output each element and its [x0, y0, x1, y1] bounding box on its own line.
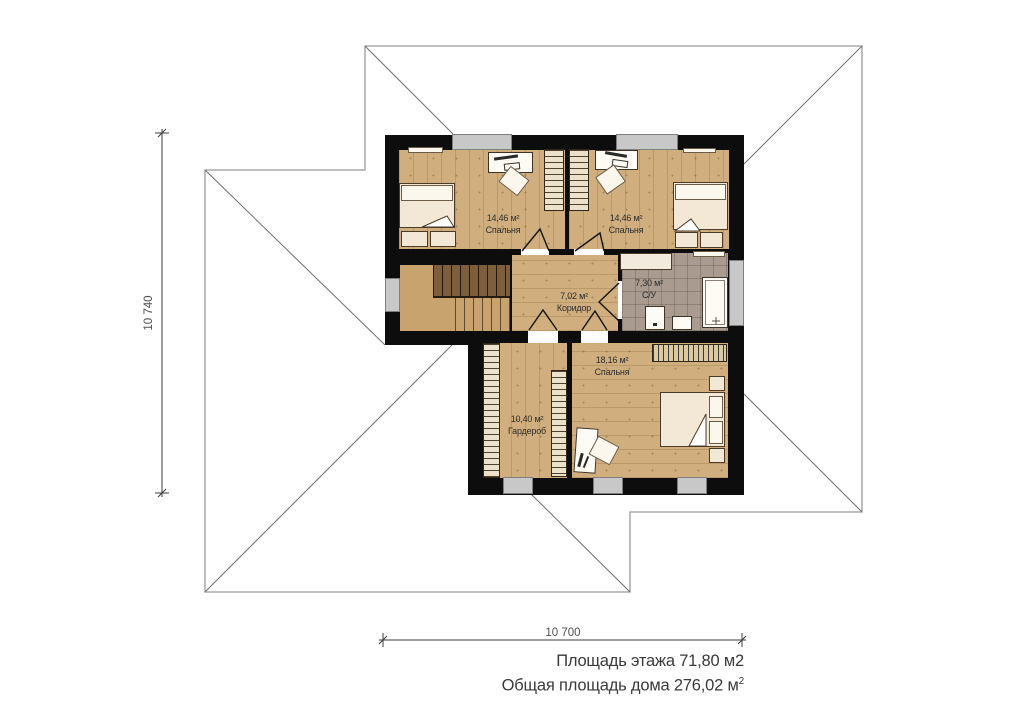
- window-left-staircase: [385, 278, 400, 312]
- stair-flight-upper: [433, 265, 510, 297]
- bathroom-counter: [620, 253, 672, 270]
- dresser-2-bedroom-top-left: [430, 231, 456, 247]
- nightstand-1-bedroom-bottom: [709, 376, 725, 391]
- label-wardrobe-area: 10,40 м²: [511, 414, 544, 424]
- label-bedroom-bottom-area: 18,16 м²: [596, 355, 629, 365]
- wardrobe-shelving-left: [483, 343, 500, 478]
- label-bedroom-top-left: 14,46 м² Спальня: [467, 213, 539, 236]
- label-bedroom-bottom-name: Спальня: [595, 367, 630, 377]
- pillow-1-bedroom-bottom: [709, 396, 723, 418]
- shelf-bedroom-top-right: [683, 148, 716, 153]
- dimension-label-bottom: 10 700: [545, 627, 580, 639]
- bathtub-inner: [705, 280, 725, 325]
- label-bedroom-top-left-name: Спальня: [486, 225, 521, 235]
- dresser-1-bedroom-top-right: [675, 232, 698, 248]
- label-bathroom-name: С/У: [642, 290, 656, 300]
- shelf-bedroom-top-left: [408, 147, 443, 153]
- label-bathroom: 7,30 м² С/У: [613, 278, 685, 301]
- closet-rail-bedroom-bottom: [652, 344, 727, 362]
- window-bottom-1: [503, 477, 533, 494]
- closet-bedroom-top-left: [544, 149, 564, 211]
- nightstand-2-bedroom-bottom: [709, 448, 725, 463]
- area-summary: Площадь этажа 71,80 м2 Общая площадь дом…: [502, 652, 744, 696]
- label-bathroom-area: 7,30 м²: [635, 278, 663, 288]
- bathroom-shelf: [693, 251, 725, 257]
- bathroom-sink: [672, 316, 692, 330]
- window-top-1: [452, 134, 512, 150]
- stair-flight-lower: [455, 297, 510, 331]
- dresser-1-bedroom-top-left: [401, 231, 428, 247]
- floor-area-text: Площадь этажа 71,80 м2: [502, 652, 744, 672]
- dimension-line-left: [155, 129, 169, 497]
- toilet-flush-button: [653, 323, 657, 326]
- floor-plan-canvas: 10 740 10 700: [0, 0, 1024, 724]
- stair-landing-edge: [433, 296, 510, 298]
- total-area-text: Общая площадь дома 276,02 м2: [502, 672, 744, 696]
- dresser-2-bedroom-top-right: [700, 232, 723, 248]
- toilet: [645, 306, 665, 330]
- window-bottom-3: [677, 477, 707, 494]
- label-bedroom-top-right-name: Спальня: [609, 225, 644, 235]
- label-bedroom-top-right-area: 14,46 м²: [610, 213, 643, 223]
- label-wardrobe: 10,40 м² Гардероб: [491, 414, 563, 437]
- pillow-2-bedroom-bottom: [709, 421, 723, 444]
- pillow-bedroom-top-left: [401, 185, 453, 201]
- window-top-2: [616, 134, 678, 150]
- label-bedroom-top-right: 14,46 м² Спальня: [590, 213, 662, 236]
- pillow-bedroom-top-right: [675, 184, 726, 200]
- total-area-superscript: 2: [739, 676, 744, 687]
- closet-bedroom-top-right: [569, 149, 589, 211]
- label-bedroom-top-left-area: 14,46 м²: [487, 213, 520, 223]
- label-corridor: 7,02 м² Коридор: [538, 291, 610, 314]
- label-bedroom-bottom: 18,16 м² Спальня: [576, 355, 648, 378]
- window-bottom-2: [593, 477, 623, 494]
- dimension-label-left: 10 740: [143, 295, 155, 330]
- label-corridor-name: Коридор: [557, 303, 591, 313]
- label-wardrobe-name: Гардероб: [508, 426, 546, 436]
- window-right-bathroom: [729, 260, 744, 326]
- label-corridor-area: 7,02 м²: [560, 291, 588, 301]
